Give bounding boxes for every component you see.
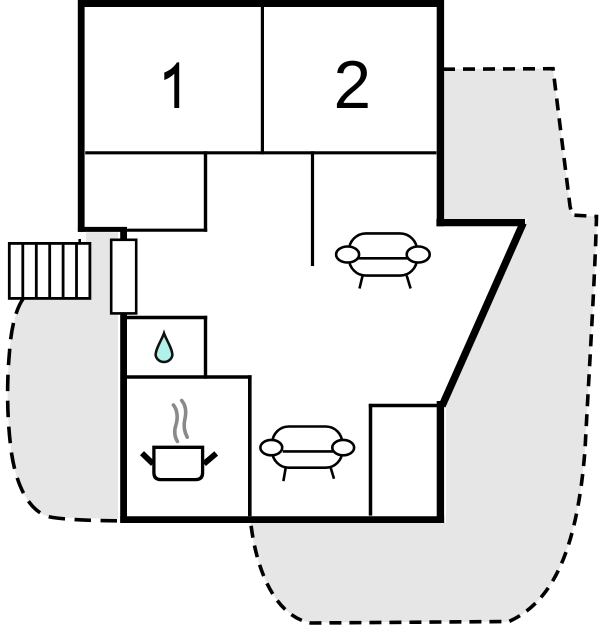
svg-text:2: 2 [334,48,372,123]
